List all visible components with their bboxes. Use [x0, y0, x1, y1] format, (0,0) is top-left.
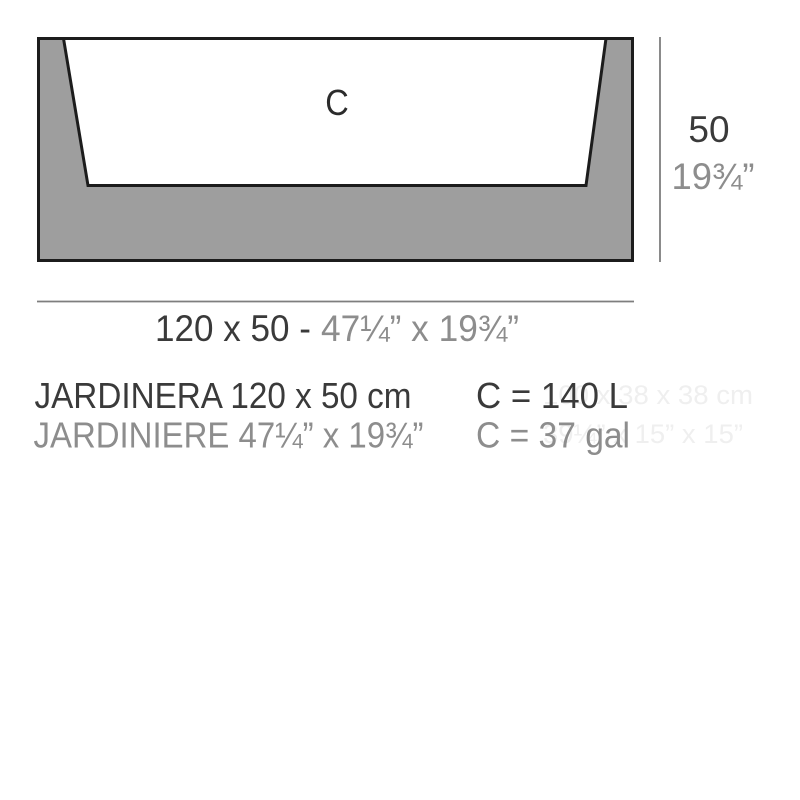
svg-text:C: C [325, 82, 349, 123]
svg-text:C = 140 L: C = 140 L [476, 375, 628, 416]
svg-text:JARDINIERE 47¼” x 19¾”: JARDINIERE 47¼” x 19¾” [34, 415, 424, 456]
svg-text:C = 37 gal: C = 37 gal [476, 415, 630, 456]
svg-text:120 x 50 -: 120 x 50 - [155, 308, 311, 349]
svg-text:50: 50 [688, 109, 729, 150]
svg-text:JARDINERA 120 x 50 cm: JARDINERA 120 x 50 cm [35, 375, 412, 416]
svg-text:19¾”: 19¾” [672, 156, 755, 197]
svg-text:47¼” x 19¾”: 47¼” x 19¾” [321, 308, 519, 349]
